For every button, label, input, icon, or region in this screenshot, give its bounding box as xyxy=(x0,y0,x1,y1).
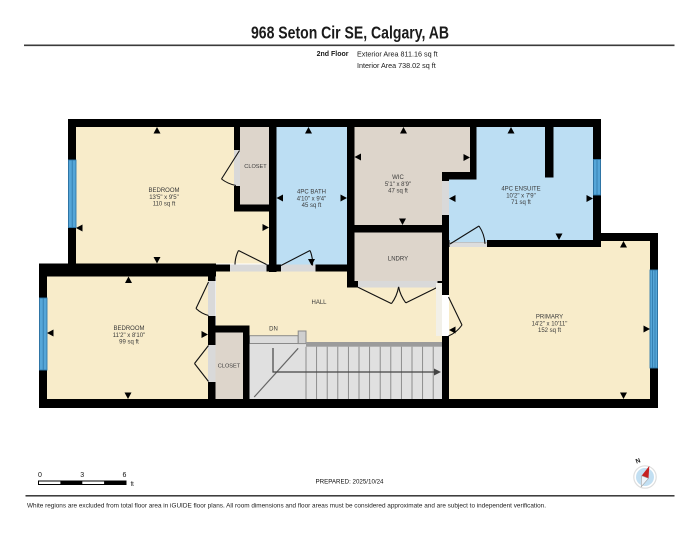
svg-text:WIC: WIC xyxy=(392,175,404,181)
svg-text:Exterior Area 811.16 sq ft: Exterior Area 811.16 sq ft xyxy=(357,49,438,58)
svg-text:CLOSET: CLOSET xyxy=(244,164,267,170)
svg-text:LNDRY: LNDRY xyxy=(388,257,408,263)
svg-text:HALL: HALL xyxy=(311,300,327,306)
svg-text:4PC BATH: 4PC BATH xyxy=(297,190,326,196)
svg-text:11'2" x 8'10": 11'2" x 8'10" xyxy=(113,333,145,339)
svg-text:110 sq ft: 110 sq ft xyxy=(153,202,176,208)
svg-text:4'10" x 9'4": 4'10" x 9'4" xyxy=(297,196,327,202)
svg-text:BEDROOM: BEDROOM xyxy=(113,326,144,332)
svg-text:45 sq ft: 45 sq ft xyxy=(302,203,322,209)
svg-text:BEDROOM: BEDROOM xyxy=(148,188,179,194)
svg-text:White regions are excluded fro: White regions are excluded from total fl… xyxy=(27,503,546,510)
svg-text:Interior Area 738.02 sq ft: Interior Area 738.02 sq ft xyxy=(357,61,436,70)
svg-text:14'2" x 10'11": 14'2" x 10'11" xyxy=(532,321,568,327)
svg-text:CLOSET: CLOSET xyxy=(218,364,241,370)
svg-text:4PC ENSUITE: 4PC ENSUITE xyxy=(501,187,540,193)
svg-text:DN: DN xyxy=(269,327,278,333)
svg-text:152 sq ft: 152 sq ft xyxy=(538,328,561,334)
svg-text:6: 6 xyxy=(123,472,127,479)
svg-text:5'1" x 8'9": 5'1" x 8'9" xyxy=(385,182,411,188)
svg-text:10'2" x 7'9": 10'2" x 7'9" xyxy=(506,193,536,199)
svg-text:PRIMARY: PRIMARY xyxy=(536,315,563,321)
svg-text:71 sq ft: 71 sq ft xyxy=(511,200,531,206)
svg-text:2nd Floor: 2nd Floor xyxy=(317,51,349,58)
svg-text:0: 0 xyxy=(38,472,42,479)
svg-text:13'5" x 9'5": 13'5" x 9'5" xyxy=(149,195,179,201)
svg-text:47 sq ft: 47 sq ft xyxy=(388,189,408,195)
svg-text:PREPARED: 2025/10/24: PREPARED: 2025/10/24 xyxy=(316,479,385,486)
svg-text:ft: ft xyxy=(131,482,135,488)
svg-text:99 sq ft: 99 sq ft xyxy=(119,340,139,346)
svg-text:3: 3 xyxy=(80,472,84,479)
svg-text:968 Seton Cir SE, Calgary, AB: 968 Seton Cir SE, Calgary, AB xyxy=(251,23,449,43)
